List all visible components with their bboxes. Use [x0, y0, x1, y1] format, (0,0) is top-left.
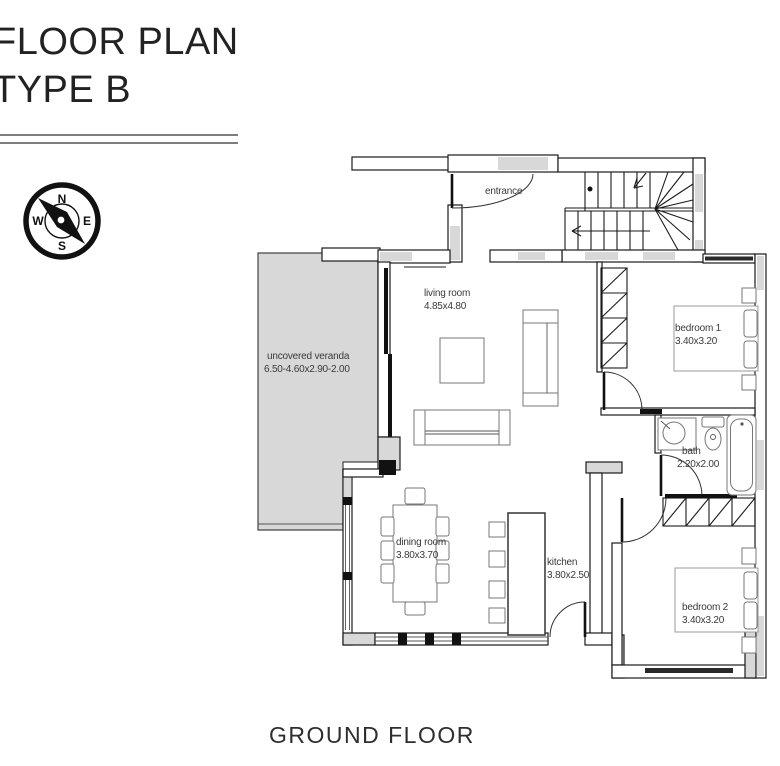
wall-fill: [518, 252, 545, 260]
bathtub: [727, 415, 756, 495]
room-label-uncovered-veranda: uncovered veranda: [267, 351, 350, 362]
sliding-door-panel: [384, 268, 388, 354]
coffee-table: [440, 338, 484, 383]
bar-stools: [489, 522, 505, 623]
window-mullion: [398, 633, 407, 645]
room-dims-kitchen: 3.80x2.50: [547, 570, 590, 581]
stair-newel: [588, 187, 593, 192]
wall-fill: [380, 252, 412, 261]
wall-fill: [640, 409, 662, 414]
wall: [601, 408, 755, 415]
compass-hub: [57, 216, 66, 225]
wall-fill: [695, 174, 703, 212]
wall-fill: [643, 252, 675, 260]
wall-fill: [450, 226, 460, 260]
room-label-living-room: living room: [424, 288, 470, 299]
veranda-area: [258, 248, 380, 530]
room-label-bath: bath: [682, 446, 701, 457]
ground-floor-caption: GROUND FLOOR: [269, 722, 475, 749]
kitchen-door: [550, 602, 585, 637]
wall-fill: [498, 157, 548, 170]
floor-plan-page: FLOOR PLAN TYPE B N S W E: [0, 0, 780, 766]
wardrobe-front: [665, 494, 737, 498]
window-mullion: [343, 572, 352, 580]
nightstand: [742, 288, 756, 303]
room-label-entrance: entrance: [485, 186, 523, 197]
room-label-bedroom-2: bedroom 2: [682, 602, 729, 613]
wall-corner: [379, 460, 396, 475]
wall: [562, 250, 705, 262]
wall-fill: [757, 256, 764, 290]
wardrobe-bedroom-2: [663, 494, 755, 526]
nightstand: [742, 375, 756, 390]
wall: [322, 248, 380, 261]
wardrobe-bedroom-1: [601, 268, 627, 368]
veranda-floor: [258, 253, 378, 530]
room-label-dining-room: dining room: [396, 537, 446, 548]
sofa-horizontal: [414, 410, 510, 445]
stairs: [565, 172, 693, 250]
window-mullion: [425, 633, 434, 645]
bedroom-1-door: [604, 372, 642, 410]
nightstand: [742, 548, 756, 564]
wall: [585, 633, 612, 645]
room-dims-dining-room: 3.80x3.70: [396, 550, 439, 561]
wall: [558, 158, 705, 172]
window-mullion: [452, 633, 461, 645]
compass-label-s: S: [58, 239, 66, 253]
compass-label-w: W: [32, 214, 44, 228]
room-dims-bedroom-1: 3.40x3.20: [675, 336, 718, 347]
room-label-bedroom-1: bedroom 1: [675, 323, 722, 334]
room-dims-bath: 2.20x2.00: [677, 459, 720, 470]
bed-2: [675, 548, 758, 653]
sofa-vertical: [523, 310, 558, 406]
wall-fill: [757, 440, 764, 490]
wall-fill: [585, 252, 618, 260]
wall-cap: [586, 462, 622, 473]
wall: [590, 473, 602, 640]
compass-label-e: E: [83, 214, 91, 228]
room-label-kitchen: kitchen: [547, 557, 577, 568]
wall: [612, 543, 622, 665]
nightstand: [742, 637, 756, 653]
wall: [343, 469, 383, 477]
stair-up-arrow: [634, 173, 646, 188]
room-dims-bedroom-2: 3.40x3.20: [682, 615, 725, 626]
bedroom-2-door: [622, 498, 666, 542]
compass-icon: N S W E: [26, 185, 98, 257]
window-glass: [705, 257, 753, 261]
floor-plan-svg: N S W E: [0, 0, 780, 766]
toilet: [702, 417, 724, 450]
compass-label-n: N: [58, 192, 67, 206]
room-dims-uncovered-veranda: 6.50-4.60x2.90-2.00: [264, 364, 350, 375]
window-glass: [645, 668, 733, 673]
room-dims-living-room: 4.85x4.80: [424, 301, 467, 312]
wall: [343, 633, 375, 645]
window-mullion: [343, 497, 352, 505]
kitchen-island: [508, 513, 545, 635]
stair-direction-arrow: [572, 226, 650, 236]
